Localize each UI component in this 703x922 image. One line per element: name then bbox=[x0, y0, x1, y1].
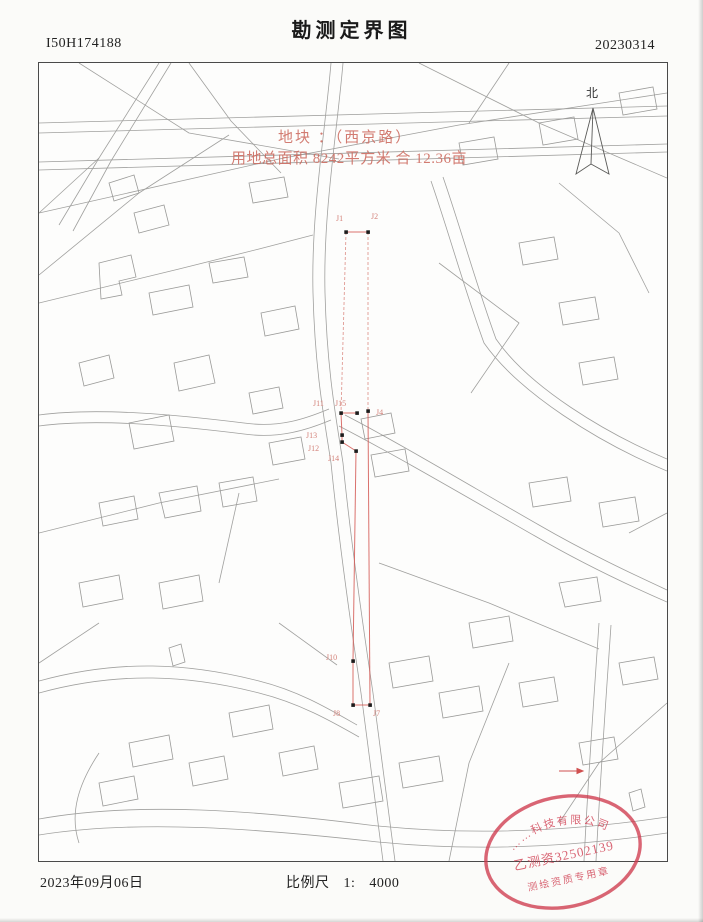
date-code: 20230314 bbox=[595, 38, 655, 54]
point-label-j8: J8 bbox=[333, 709, 340, 718]
point-label-j4: J4 bbox=[376, 408, 383, 417]
scanned-survey-map-page: 勘测定界图 I50H174188 20230314 bbox=[0, 0, 703, 922]
scale-ratio: 1: bbox=[344, 876, 356, 891]
parcel-boundary: J1 J2 J11 J15 J4 J13 J12 J14 J10 J8 J7 bbox=[306, 212, 583, 774]
sheet-number: I50H174188 bbox=[46, 36, 122, 52]
point-label-j15: J15 bbox=[335, 399, 346, 408]
point-label-j1: J1 bbox=[336, 214, 343, 223]
scale-label: 比例尺 bbox=[286, 876, 330, 891]
point-label-j13: J13 bbox=[306, 431, 317, 440]
point-label-j11: J11 bbox=[313, 399, 324, 408]
north-label: 北 bbox=[586, 86, 598, 100]
map-canvas: 北 bbox=[39, 63, 667, 861]
plot-name-note: 地块 ：（西京路） bbox=[278, 126, 412, 147]
point-label-j7: J7 bbox=[373, 709, 380, 718]
survey-date: 2023年09月06日 bbox=[40, 872, 144, 892]
red-arrow-marker bbox=[559, 769, 583, 774]
map-frame: 北 bbox=[38, 62, 668, 862]
stamp-bottom-text: 测绘资质专用章 bbox=[526, 864, 611, 894]
scale-bar: 比例尺1:4000 bbox=[286, 872, 399, 892]
point-label-j2: J2 bbox=[371, 212, 378, 221]
point-label-j12: J12 bbox=[308, 444, 319, 453]
plot-area-note: 用地总面积 8242平方米 合 12.36亩 bbox=[231, 147, 467, 168]
point-label-j10: J10 bbox=[326, 653, 337, 662]
point-label-j14: J14 bbox=[328, 454, 339, 463]
scale-denominator: 4000 bbox=[369, 876, 399, 891]
